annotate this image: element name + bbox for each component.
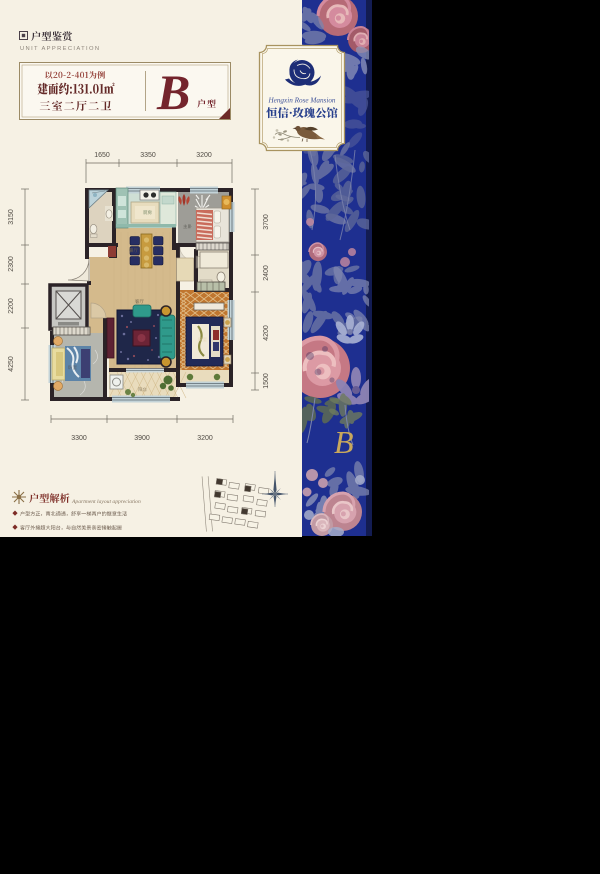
svg-text:B: B	[334, 424, 354, 460]
svg-text:3900: 3900	[134, 435, 150, 442]
svg-text:4200: 4200	[263, 325, 270, 341]
svg-text:2400: 2400	[263, 265, 270, 281]
svg-text:3300: 3300	[71, 435, 87, 442]
svg-text:4250: 4250	[8, 356, 15, 372]
svg-text:3200: 3200	[197, 435, 213, 442]
svg-text:Hengxin Rose Mansion: Hengxin Rose Mansion	[267, 97, 335, 105]
svg-text:3700: 3700	[263, 214, 270, 230]
svg-text:UNIT APPRECIATION: UNIT APPRECIATION	[20, 46, 100, 52]
svg-text:2300: 2300	[8, 256, 15, 272]
svg-text:3150: 3150	[8, 209, 15, 225]
svg-text:Apartment layout appreciation: Apartment layout appreciation	[71, 499, 141, 505]
svg-text:1650: 1650	[94, 152, 110, 159]
svg-text:1500: 1500	[263, 373, 270, 389]
svg-text:3200: 3200	[196, 152, 212, 159]
svg-text:2200: 2200	[8, 298, 15, 314]
svg-text:B: B	[156, 64, 190, 120]
svg-text:3350: 3350	[140, 152, 156, 159]
